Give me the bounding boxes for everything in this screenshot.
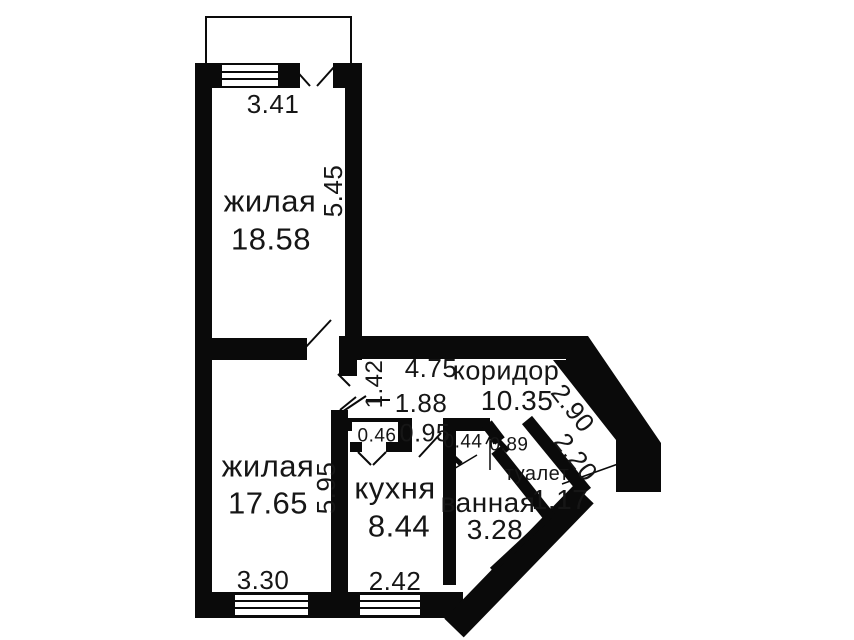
room-label-corridor: коридор [453,358,560,385]
window-kitchen [360,595,420,615]
room-label-toilet: туалет [505,464,570,484]
room-area-bathroom: 3.28 [467,516,524,544]
dim-living2-depth: 5.95 [313,462,339,515]
dim-kitchen-offset: 1.88 [395,390,448,416]
door-swing-living [305,320,331,348]
floorplan: жилая 18.58 жилая 17.65 кухня 8.44 ванна… [0,0,854,640]
floorplan-walls-svg [0,0,854,640]
dim-toilet-door: 0.89 [490,436,529,455]
room-area-living2: 17.65 [228,488,308,519]
room-area-living1: 18.58 [231,224,311,255]
dim-corridor-length: 4.75 [405,355,458,381]
room-label-bathroom: ванная [441,489,536,517]
room-area-corridor: 10.35 [481,387,554,415]
room-label-living2: жилая [222,451,315,482]
room-area-kitchen: 8.44 [368,511,430,542]
dim-corridor-width: 1.42 [363,360,387,409]
dim-living1-width: 3.41 [247,91,300,117]
wall-corridor-stub [339,359,357,376]
balcony-outline [206,17,351,64]
room-area-toilet: 1.17 [532,486,589,514]
wall-corner-block [616,448,661,492]
room-label-kitchen: кухня [354,473,435,504]
room-label-living1: жилая [224,186,317,217]
window-living2 [235,595,308,615]
dim-bath-door: 0.44 [444,433,483,452]
dim-living1-depth: 5.45 [320,165,346,218]
dim-kitchen-width: 2.42 [369,568,422,594]
dim-niche: 0.46 [358,427,397,446]
window-top [222,65,278,86]
wall-between-living [195,338,307,360]
dim-living2-width: 3.30 [237,567,290,593]
wall-top [195,63,362,88]
